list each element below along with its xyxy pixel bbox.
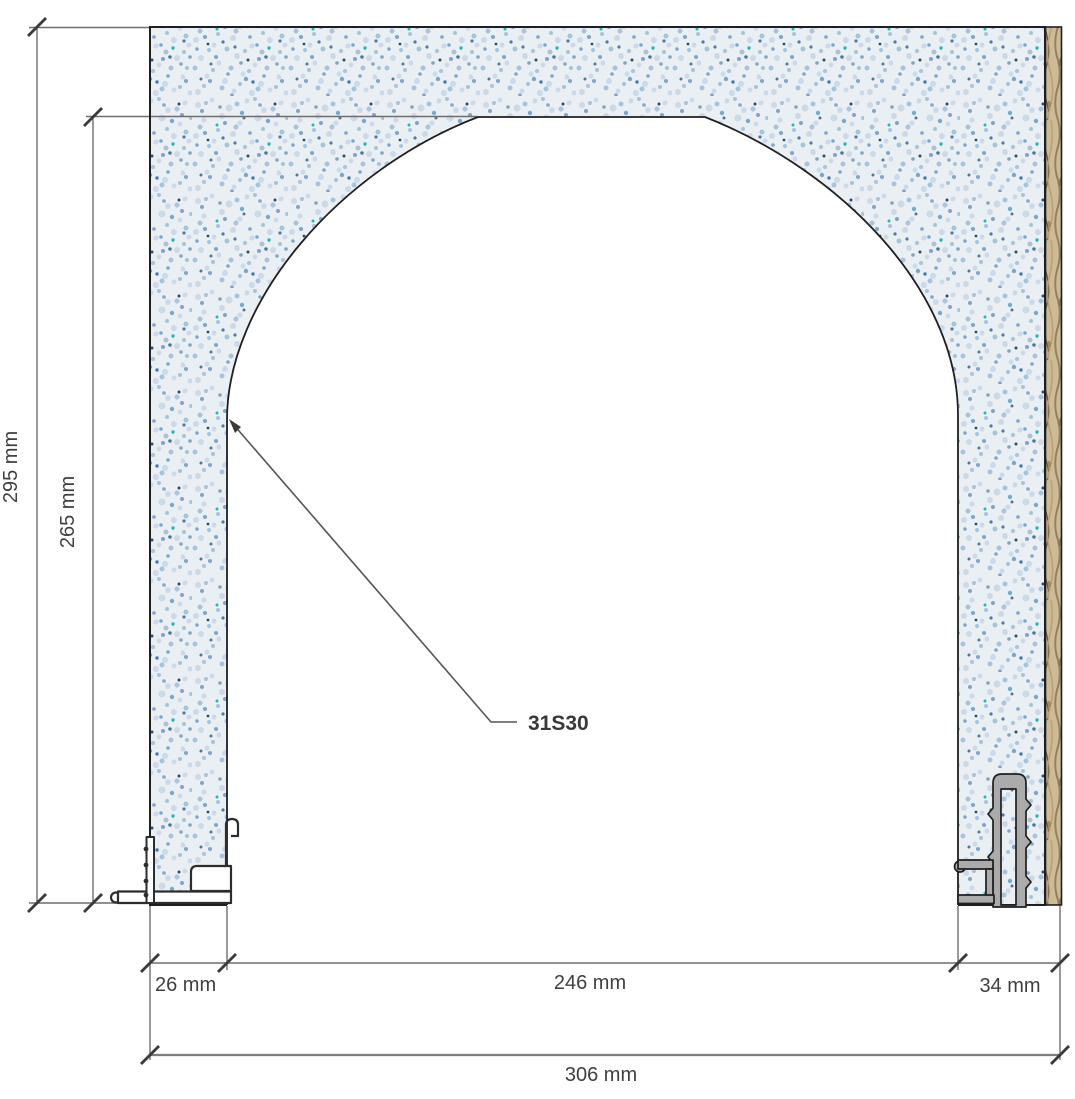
technical-drawing: 295 mm 265 mm 26 mm 246 mm 34 mm 306 mm … — [0, 0, 1075, 1099]
dim-left-leg: 26 mm — [155, 974, 216, 996]
profile-edge-clip — [147, 837, 155, 903]
drawing-canvas: 295 mm 265 mm 26 mm 246 mm 34 mm 306 mm … — [0, 0, 1075, 1099]
foot-vertical — [986, 869, 993, 897]
leader-line — [229, 419, 517, 722]
wood-edge-strip — [1046, 27, 1062, 905]
profile-base-rail — [118, 892, 231, 904]
dim-opening-height: 265 mm — [57, 476, 79, 548]
foot-bar — [958, 860, 993, 869]
foot-bottom — [958, 895, 994, 904]
dim-right-leg: 34 mm — [979, 975, 1040, 997]
arch-outline — [227, 117, 958, 905]
dim-opening-width: 246 mm — [554, 972, 626, 994]
part-label: 31S30 — [528, 712, 589, 735]
dim-total-height: 295 mm — [0, 431, 22, 503]
panel-body — [150, 27, 1045, 905]
dim-total-width: 306 mm — [565, 1064, 637, 1086]
profile-step — [191, 866, 231, 891]
